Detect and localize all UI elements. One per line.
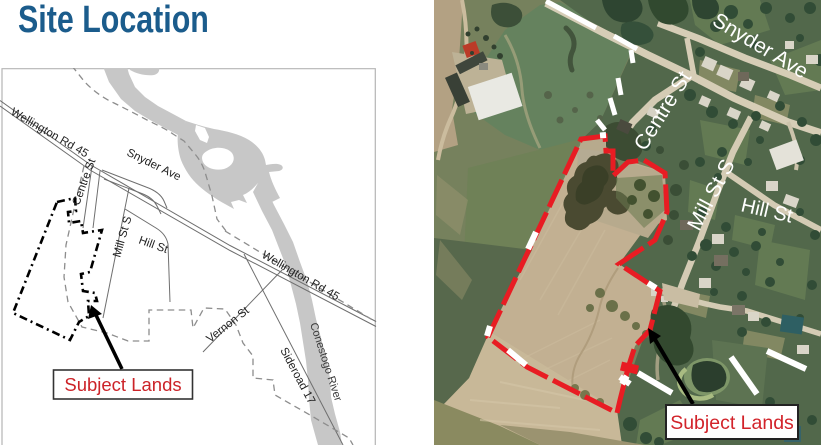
svg-text:Subject Lands: Subject Lands [670,412,794,434]
svg-text:Centre St: Centre St [71,157,99,208]
svg-text:Snyder Ave: Snyder Ave [125,147,183,183]
svg-text:Subject Lands: Subject Lands [64,374,181,395]
svg-text:Mill St S: Mill St S [111,215,134,259]
svg-text:Hill St: Hill St [137,235,170,257]
svg-text:Wellington Rd 45: Wellington Rd 45 [9,106,91,160]
svg-text:Vernon St: Vernon St [204,304,252,345]
